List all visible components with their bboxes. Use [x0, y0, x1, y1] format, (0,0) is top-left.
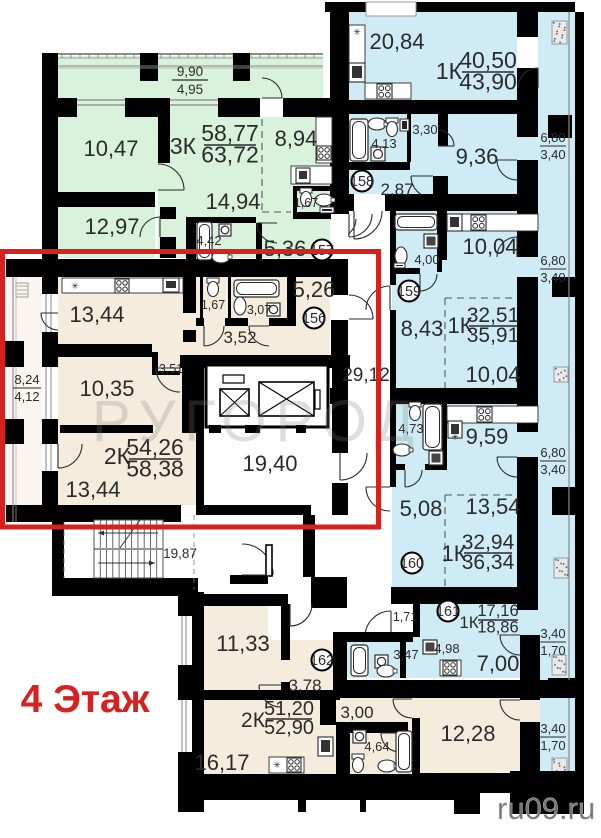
svg-text:✳: ✳: [353, 27, 361, 37]
svg-text:36,34: 36,34: [462, 551, 515, 574]
svg-text:4,13: 4,13: [371, 136, 396, 151]
svg-text:4,42: 4,42: [196, 233, 221, 248]
svg-text:3,78: 3,78: [288, 676, 321, 695]
svg-text:4,00: 4,00: [414, 252, 439, 267]
svg-text:10,04: 10,04: [462, 234, 517, 259]
svg-text:160: 160: [400, 556, 424, 572]
svg-text:18,86: 18,86: [477, 618, 518, 636]
svg-text:12,97: 12,97: [84, 214, 139, 239]
svg-text:9,36: 9,36: [456, 144, 499, 169]
svg-text:162: 162: [310, 653, 334, 669]
svg-text:11,33: 11,33: [216, 631, 269, 656]
svg-text:3,47: 3,47: [393, 647, 418, 662]
svg-text:6,80: 6,80: [540, 130, 565, 145]
svg-text:161: 161: [436, 604, 460, 620]
svg-text:3,07: 3,07: [247, 303, 271, 317]
svg-text:159: 159: [397, 284, 421, 300]
svg-text:3,40: 3,40: [540, 147, 565, 162]
svg-text:9,59: 9,59: [466, 424, 509, 449]
svg-text:✳: ✳: [273, 760, 281, 770]
svg-text:1К: 1К: [459, 613, 478, 632]
svg-text:2,87: 2,87: [380, 180, 413, 199]
svg-text:13,44: 13,44: [69, 302, 124, 327]
svg-text:58,38: 58,38: [126, 455, 184, 481]
svg-text:3,00: 3,00: [340, 703, 373, 722]
svg-text:3К: 3К: [170, 133, 197, 159]
svg-text:2К: 2К: [241, 709, 266, 732]
svg-text:63,72: 63,72: [201, 141, 259, 167]
svg-text:1,70: 1,70: [540, 738, 565, 753]
svg-text:4 Этаж: 4 Этаж: [21, 678, 150, 721]
svg-text:8,43: 8,43: [401, 316, 444, 341]
svg-text:35,91: 35,91: [467, 324, 520, 347]
svg-text:✳: ✳: [451, 432, 459, 442]
svg-text:52,90: 52,90: [264, 717, 314, 739]
svg-text:ru09.ru: ru09.ru: [497, 791, 595, 826]
svg-text:3,40: 3,40: [540, 270, 565, 285]
svg-text:10,47: 10,47: [83, 136, 138, 161]
svg-text:10,04: 10,04: [465, 362, 520, 387]
svg-text:6,80: 6,80: [540, 445, 565, 460]
svg-text:158: 158: [350, 174, 374, 190]
svg-text:13,44: 13,44: [65, 477, 120, 502]
svg-text:3,30: 3,30: [412, 122, 437, 137]
svg-text:17,16: 17,16: [477, 602, 518, 620]
svg-text:✳: ✳: [71, 281, 79, 291]
svg-text:1,67: 1,67: [201, 298, 225, 312]
svg-text:16,17: 16,17: [194, 750, 249, 775]
svg-text:3,40: 3,40: [540, 462, 565, 477]
svg-text:14,94: 14,94: [205, 189, 260, 214]
svg-text:3,40: 3,40: [540, 626, 565, 641]
svg-text:1,70: 1,70: [540, 643, 565, 658]
svg-text:РУГОРОД: РУГОРОД: [92, 389, 423, 454]
svg-text:8,24: 8,24: [14, 372, 39, 387]
svg-text:156: 156: [302, 311, 326, 327]
svg-text:7,00: 7,00: [477, 651, 520, 676]
svg-text:3,40: 3,40: [540, 721, 565, 736]
svg-text:8,94: 8,94: [275, 126, 318, 151]
svg-text:4,98: 4,98: [434, 641, 459, 656]
svg-text:19,87: 19,87: [163, 546, 197, 561]
svg-text:5,08: 5,08: [400, 496, 443, 521]
svg-text:4,95: 4,95: [177, 82, 203, 97]
svg-text:3,52: 3,52: [223, 328, 256, 347]
svg-text:29,12: 29,12: [342, 365, 390, 386]
svg-text:9,90: 9,90: [177, 64, 203, 79]
svg-text:5,26: 5,26: [293, 277, 336, 302]
svg-text:3,51: 3,51: [159, 362, 183, 376]
svg-text:1,71: 1,71: [393, 610, 417, 624]
svg-text:20,84: 20,84: [369, 29, 424, 54]
svg-text:12,28: 12,28: [440, 721, 495, 746]
svg-text:43,90: 43,90: [459, 68, 517, 94]
svg-text:1,67: 1,67: [294, 196, 318, 210]
svg-text:5,36: 5,36: [264, 236, 307, 261]
svg-text:4,12: 4,12: [14, 389, 39, 404]
svg-text:19,40: 19,40: [242, 451, 297, 476]
svg-text:4,64: 4,64: [364, 739, 389, 754]
svg-text:13,54: 13,54: [465, 494, 520, 519]
svg-text:6,80: 6,80: [540, 253, 565, 268]
